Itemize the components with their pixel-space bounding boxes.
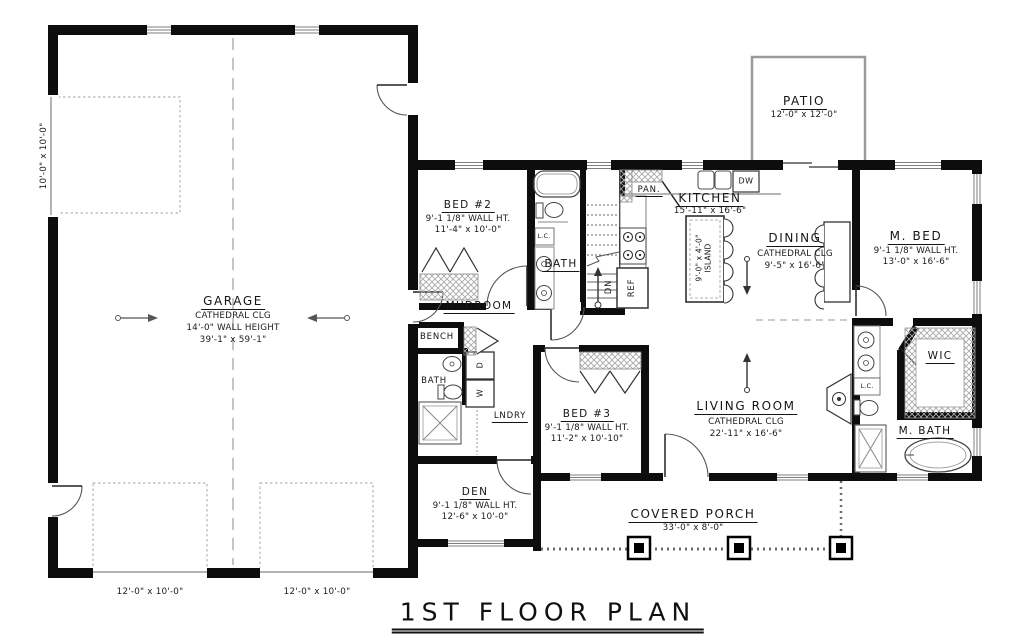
linen-closet-label: L.C. [860, 382, 873, 390]
dining-table [824, 222, 850, 302]
island-label: 9'-0" x 4'-0" ISLAND [695, 234, 714, 281]
sheet-title: 1ST FLOOR PLAN [392, 598, 704, 627]
porch-size: 33'-0" x 8'-0" [663, 523, 724, 533]
bed2-wall-height: 9'-1 1/8" WALL HT. [426, 214, 511, 224]
mbed-label: M. BED [888, 229, 945, 243]
side-garage-door-dim: 10'-0" x 10'-0" [39, 123, 49, 190]
sink [443, 357, 461, 372]
kitchen-size: 15'-11" x 16'-6" [674, 206, 746, 216]
porch-label: COVERED PORCH [628, 507, 757, 521]
bed3-wall-height: 9'-1 1/8" WALL HT. [545, 423, 630, 433]
bifold-doors [422, 248, 450, 272]
mbed-wall-height: 9'-1 1/8" WALL HT. [874, 246, 959, 256]
dryer-label: D [476, 362, 485, 369]
dining-size: 9'-5" x 16'-6" [765, 261, 826, 271]
kitchen-sink [698, 171, 714, 189]
bed3-label: BED #3 [561, 408, 614, 420]
sink [537, 286, 552, 301]
toilet [438, 385, 444, 399]
den-size: 12'-6" x 10'-0" [442, 512, 509, 522]
bed3-size: 11'-2" x 10'-10" [551, 434, 623, 444]
washer-label: W [476, 389, 485, 397]
soaking-tub [905, 438, 971, 472]
door-openings [47, 83, 709, 579]
sink [858, 355, 874, 371]
mudroom-label: MUDROOM [444, 300, 515, 312]
laundry-label: LNDRY [492, 411, 528, 421]
closet-door [477, 328, 498, 354]
dining-label: DINING [766, 231, 823, 245]
den-label: DEN [460, 486, 490, 498]
hall-bath-label: BATH [542, 258, 579, 270]
garage-ceiling: CATHEDRAL CLG [195, 311, 271, 321]
den-wall-height: 9'-1 1/8" WALL HT. [433, 501, 518, 511]
mbath-label: M. BATH [897, 425, 954, 437]
bed2-size: 11'-4" x 10'-0" [435, 225, 502, 235]
bifold-doors [580, 371, 610, 393]
hall-bath-fixtures [534, 171, 580, 309]
living-label: LIVING ROOM [694, 399, 797, 413]
garage-size: 39'-1" x 59'-1" [200, 335, 267, 345]
sink [858, 332, 874, 348]
wic-label: WIC [926, 350, 955, 362]
garage-door-dim-left: 12'-0" x 10'-0" [117, 587, 184, 597]
patio-size: 12'-0" x 12'-0" [771, 110, 838, 120]
living-ceiling: CATHEDRAL CLG [708, 417, 784, 427]
floor-plan-drawing [0, 0, 1024, 640]
floor-plan: GARAGE CATHEDRAL CLG 14'-0" WALL HEIGHT … [0, 0, 1024, 640]
toilet [854, 400, 860, 415]
mbed-size: 13'-0" x 16'-6" [883, 257, 950, 267]
stairs-dn-label: DN [604, 280, 614, 295]
bench-label: BENCH [420, 332, 454, 342]
island-stools [724, 219, 733, 303]
staircase [587, 205, 619, 308]
living-size: 22'-11" x 16'-6" [710, 429, 782, 439]
linen-closet-label: L.C. [537, 232, 550, 240]
half-bath-label: BATH [421, 376, 447, 386]
bed2-label: BED #2 [442, 199, 495, 211]
garage-door-dim-right: 12'-0" x 10'-0" [284, 587, 351, 597]
kitchen-label: KITCHEN [676, 191, 743, 205]
master-bath-fixtures [854, 326, 975, 472]
pantry-label: PAN. [636, 185, 663, 195]
dining-ceiling: CATHEDRAL CLG [757, 249, 833, 259]
dishwasher-label: DW [738, 177, 753, 186]
garage-wall-height: 14'-0" WALL HEIGHT [186, 323, 279, 333]
patio-label: PATIO [781, 94, 827, 108]
toilet [536, 203, 543, 218]
refrigerator-label: REF [627, 279, 637, 298]
garage-label: GARAGE [201, 294, 265, 308]
